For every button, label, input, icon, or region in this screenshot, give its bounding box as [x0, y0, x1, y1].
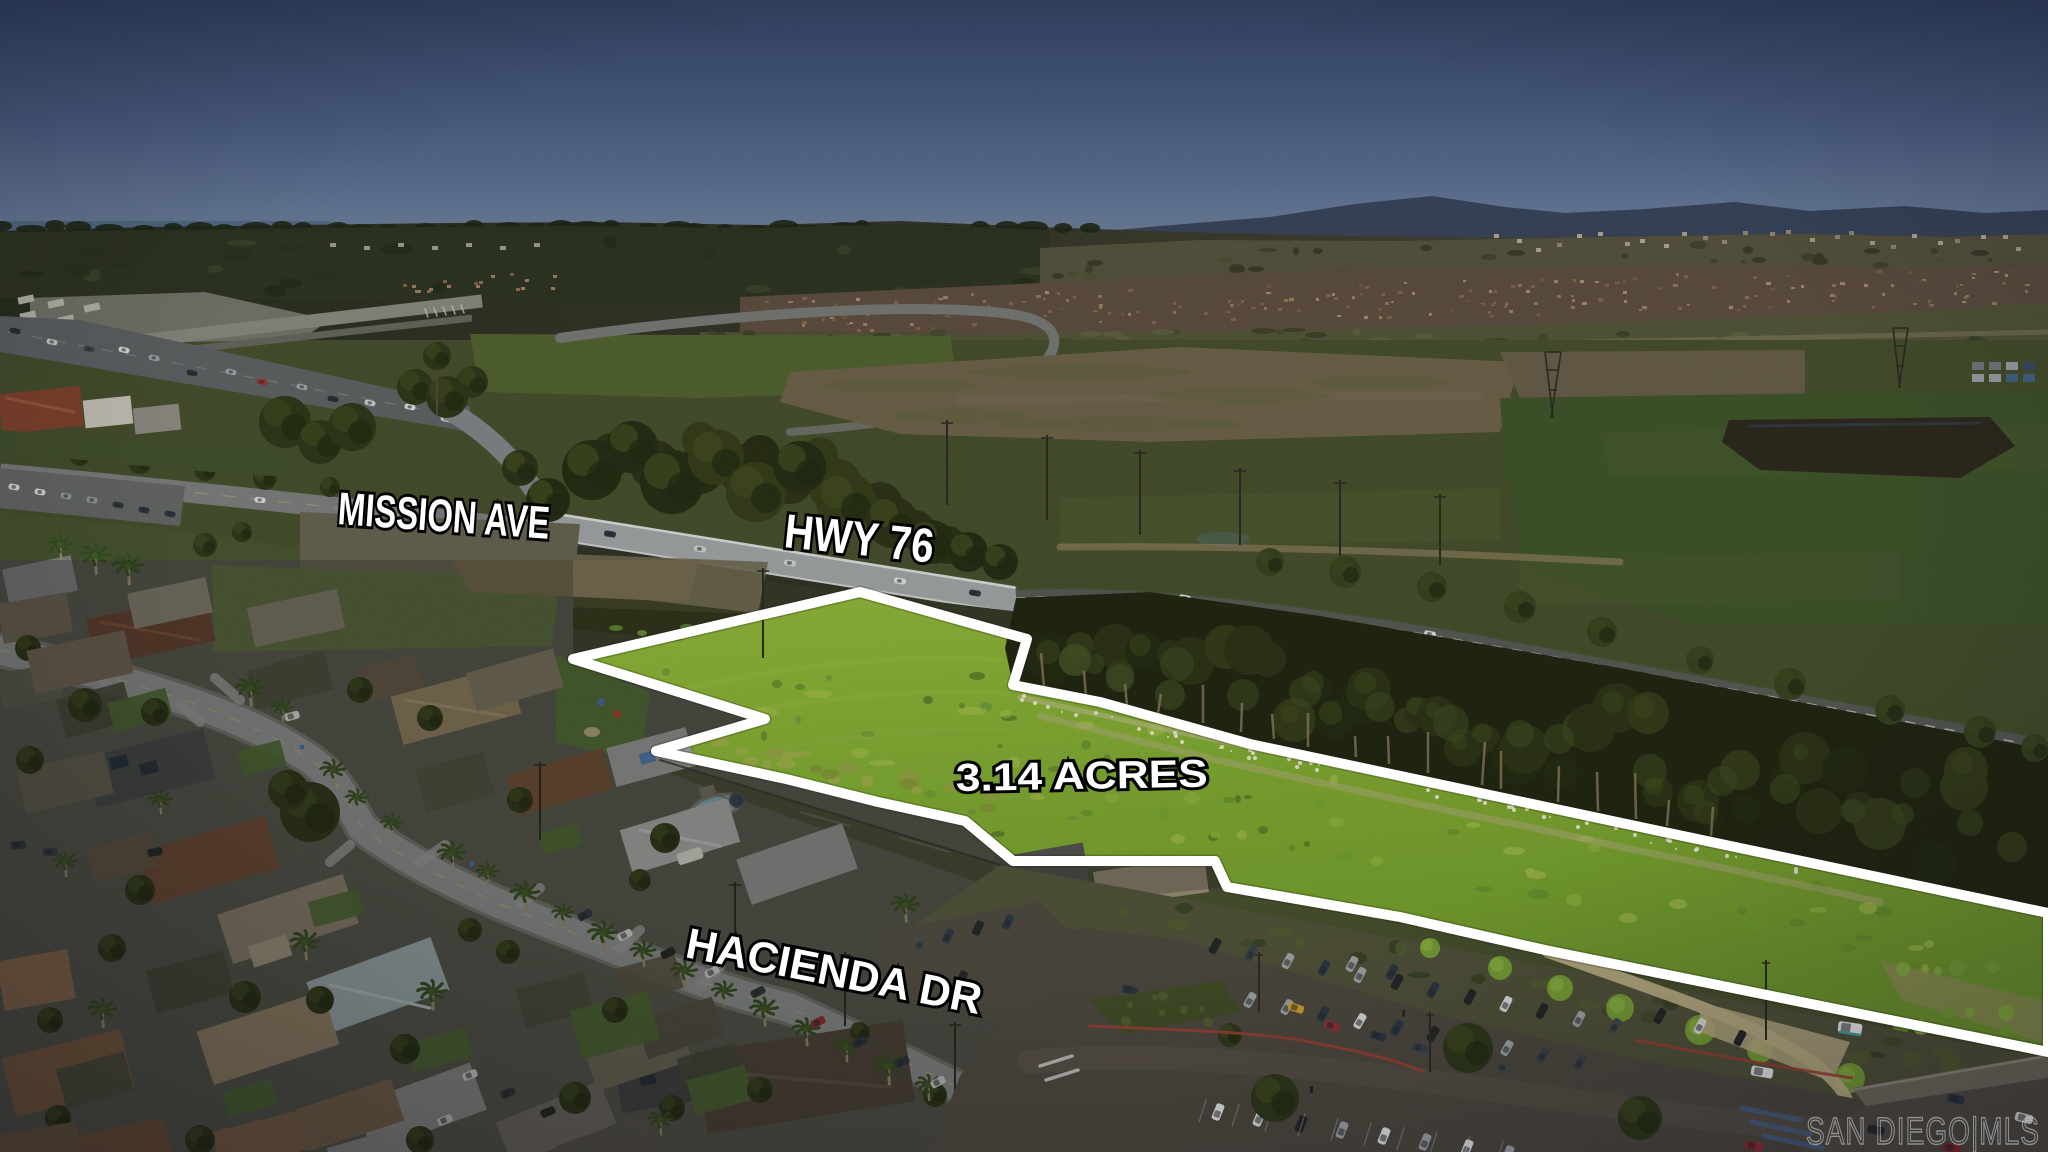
svg-text:3.14 ACRES: 3.14 ACRES: [955, 753, 1208, 800]
svg-text:SAN DIEGO|MLS: SAN DIEGO|MLS: [1806, 1111, 2040, 1152]
